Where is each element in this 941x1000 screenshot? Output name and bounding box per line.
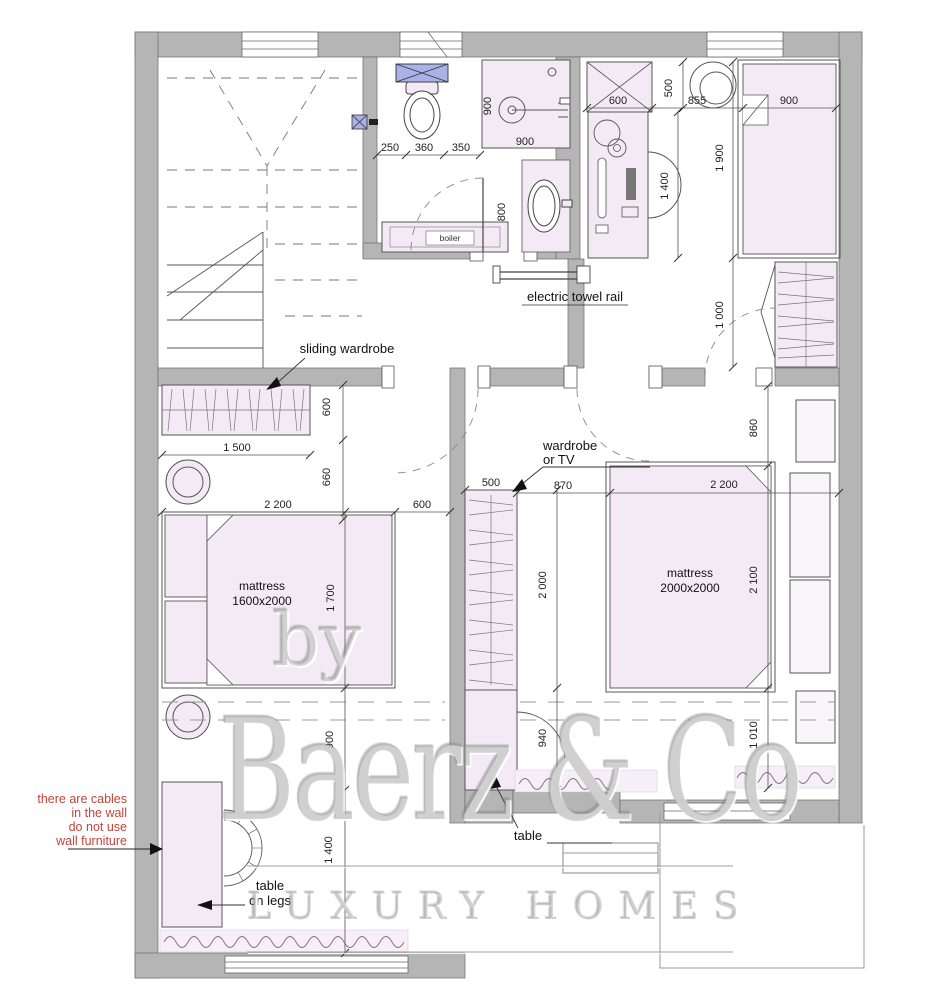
- dim-c-tv: 500: [482, 477, 500, 489]
- dim-toilet: 360: [415, 142, 433, 154]
- monitor-icon: [626, 168, 636, 200]
- dim-tr-wardrobe: 600: [609, 95, 627, 107]
- label-mattress-left-1: mattress: [239, 579, 285, 593]
- dim-tr-pouf: 855: [688, 95, 706, 107]
- dim-shower-v: 900: [482, 97, 494, 115]
- wardrobe-door-leaf: [761, 262, 775, 367]
- bathroom: boiler: [352, 60, 590, 283]
- label-mattress-right-1: mattress: [667, 566, 713, 580]
- dim-lb-below: 900: [324, 731, 336, 749]
- dim-tr-desk: 1 400: [659, 172, 671, 200]
- label-electric-towel-rail: electric towel rail: [527, 289, 623, 304]
- dim-tr-wardrobe2: 1 000: [714, 301, 726, 329]
- boiler-cabinet: boiler: [382, 222, 508, 252]
- warning-line-1: there are cables: [37, 792, 127, 806]
- terrace-outline: [563, 813, 864, 968]
- label-wardrobe-or-tv-1: wardrobe: [542, 438, 597, 453]
- staircase: [167, 70, 362, 368]
- arrowhead: [512, 479, 527, 492]
- dim-hall-gap: 660: [321, 468, 333, 486]
- label-mattress-right-2: 2000x2000: [660, 581, 720, 595]
- boiler-label: boiler: [440, 233, 461, 243]
- dim-lb-bed-l: 1 700: [325, 584, 337, 612]
- dim-hall-wardrobe-w: 1 500: [223, 442, 251, 454]
- label-table-on-legs-1: table: [256, 878, 284, 893]
- sliding-wardrobe: [162, 385, 310, 435]
- single-bed: [738, 60, 840, 258]
- dim-rb-bed-w: 2 200: [710, 479, 738, 491]
- dim-shower-h: 900: [516, 136, 534, 148]
- dim-lb-bed-w: 2 200: [264, 499, 292, 511]
- warning-line-2: in the wall: [71, 806, 127, 820]
- floor-plan-canvas: boiler: [0, 0, 941, 1000]
- chair-icon: [224, 810, 262, 886]
- center-column: [465, 490, 565, 790]
- dim-c-gap: 870: [554, 480, 572, 492]
- dim-c-below: 940: [537, 729, 549, 747]
- label-mattress-left-2: 1600x2000: [232, 594, 292, 608]
- dim-tr-bed-l: 1 900: [714, 144, 726, 172]
- dim-c-wardrobe-l: 2 000: [537, 571, 549, 599]
- dim-rb-below: 1 010: [748, 721, 760, 749]
- dim-toilet-left: 250: [381, 142, 399, 154]
- warning-line-4: wall furniture: [55, 834, 127, 848]
- label-sliding-wardrobe: sliding wardrobe: [300, 341, 395, 356]
- dim-hall-wardrobe-d: 600: [321, 398, 333, 416]
- dim-sink: 800: [496, 203, 508, 221]
- label-wardrobe-or-tv-2: or TV: [543, 452, 575, 467]
- warning-line-3: do not use: [69, 820, 127, 834]
- label-table: table: [514, 828, 542, 843]
- round-side-table-top: [166, 460, 210, 504]
- bedroom-right: [606, 400, 835, 743]
- toilet-icon: [404, 82, 440, 139]
- label-table-on-legs-2: on legs: [249, 893, 291, 908]
- shower-tray: [482, 60, 570, 148]
- dim-toilet-right: 350: [452, 142, 470, 154]
- dim-tr-bed-w: 900: [780, 95, 798, 107]
- dim-lb-room: 1 400: [323, 836, 335, 864]
- dim-rb-bed-l: 2 100: [748, 566, 760, 594]
- dim-rb-above: 860: [748, 419, 760, 437]
- nightstands: [790, 400, 835, 743]
- floor-plan-page: boiler: [0, 0, 941, 1000]
- door-arc-left-bedroom: [394, 389, 478, 473]
- tv-wardrobe: [465, 490, 517, 690]
- narrow-table: [465, 690, 517, 790]
- dim-tr-depth: 500: [663, 79, 675, 97]
- dim-lb-gap: 600: [413, 499, 431, 511]
